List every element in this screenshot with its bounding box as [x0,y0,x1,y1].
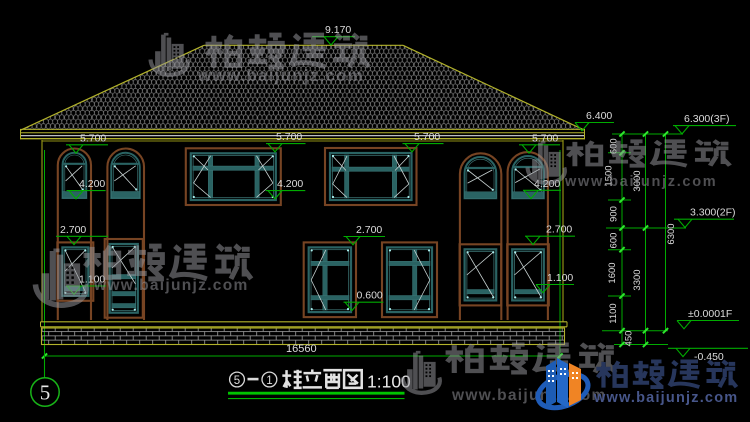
svg-text:4.200: 4.200 [79,178,105,190]
svg-text:2.700: 2.700 [356,224,382,236]
svg-text:www.baijunjz.com: www.baijunjz.com [93,277,249,294]
svg-text:3.300(2F): 3.300(2F) [690,207,736,219]
svg-text:6.400: 6.400 [586,110,612,122]
svg-text:600: 600 [609,233,620,249]
svg-text:2.700: 2.700 [546,224,572,236]
svg-text:5.700: 5.700 [80,132,106,144]
svg-text:4.200: 4.200 [277,178,303,190]
svg-text:1: 1 [266,375,272,387]
svg-text:5: 5 [40,381,51,405]
svg-text:1.100: 1.100 [547,272,573,284]
svg-text:1100: 1100 [608,303,619,323]
svg-text:450: 450 [624,331,635,347]
svg-text:6300: 6300 [666,223,677,244]
svg-text:5.700: 5.700 [276,131,302,143]
svg-text:5.700: 5.700 [414,131,440,143]
svg-text:2.700: 2.700 [60,224,86,236]
svg-text:900: 900 [609,206,620,222]
svg-text:5: 5 [234,375,240,387]
svg-text:0.600: 0.600 [357,290,383,302]
svg-text:16560: 16560 [286,343,317,355]
svg-text:www.baijunjz.com: www.baijunjz.com [593,390,738,406]
svg-text:www.baijunjz.com: www.baijunjz.com [564,174,717,190]
svg-text:6.300(3F): 6.300(3F) [684,113,730,125]
svg-text:±0.0001F: ±0.0001F [688,308,732,320]
svg-text:1600: 1600 [607,262,618,283]
svg-text:www.baijunjz.com: www.baijunjz.com [197,66,364,85]
svg-text:3300: 3300 [632,269,643,290]
